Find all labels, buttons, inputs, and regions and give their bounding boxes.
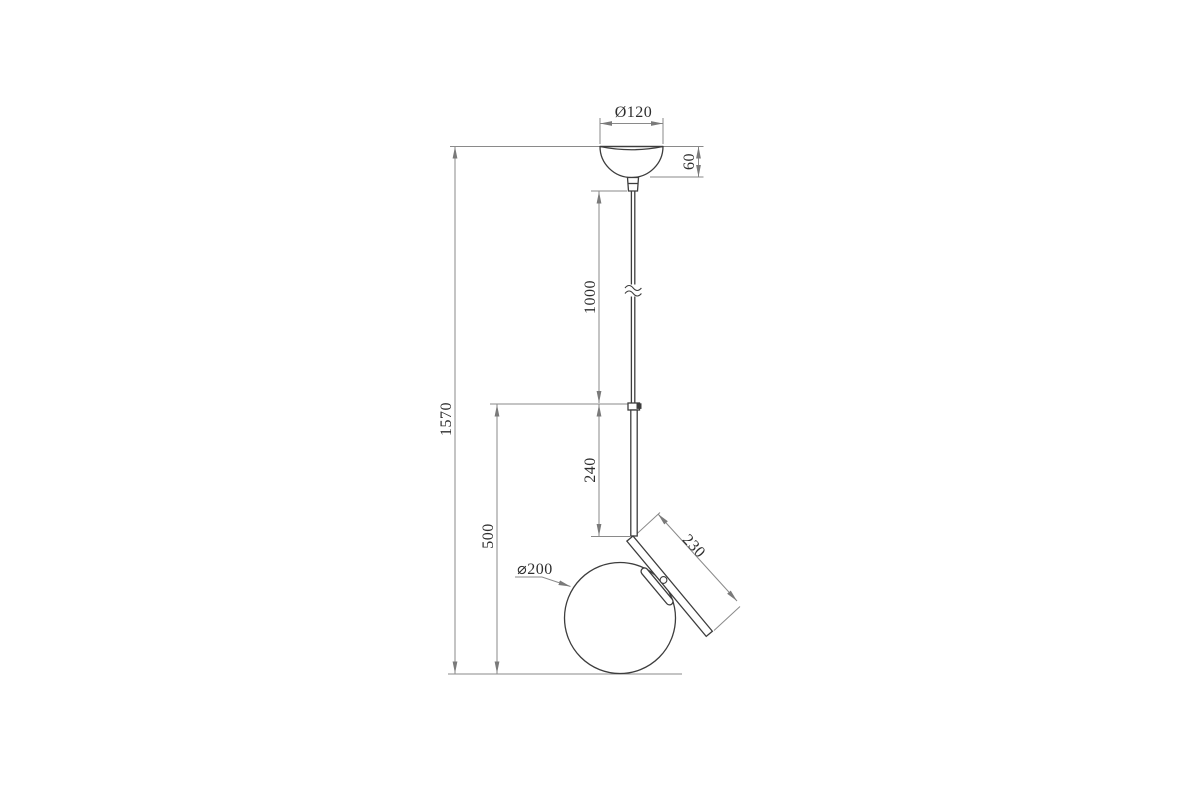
- ext-line-arm-top: [635, 513, 660, 536]
- label-suspension-length: 1000: [582, 280, 599, 314]
- label-shade-drop: 500: [480, 523, 497, 549]
- stem-rod: [631, 410, 637, 536]
- label-canopy-diameter: Ø120: [615, 104, 653, 121]
- cord-lower: [631, 297, 634, 404]
- drawing-canvas: Ø120 60 1000 1570 240 500 230 ⌀200: [0, 0, 1200, 800]
- label-arm-length: 230: [679, 531, 709, 561]
- clamp-screw: [660, 577, 667, 584]
- dimension-layer: [448, 118, 740, 674]
- cord-grip: [628, 178, 639, 192]
- break-symbol-bottom: [625, 291, 641, 296]
- canopy-bowl: [600, 147, 663, 178]
- label-overall-height: 1570: [438, 402, 455, 436]
- break-symbol-top: [625, 286, 641, 291]
- label-shade-diameter: ⌀200: [517, 561, 553, 578]
- cord-upper: [631, 191, 634, 285]
- object-layer: [565, 147, 713, 674]
- rod-connector-lock: [637, 403, 642, 409]
- technical-drawing: Ø120 60 1000 1570 240 500 230 ⌀200: [0, 0, 1200, 800]
- ext-line-arm-end: [714, 607, 740, 631]
- text-layer: Ø120 60 1000 1570 240 500 230 ⌀200: [438, 104, 709, 578]
- label-stem-length: 240: [582, 457, 599, 483]
- label-canopy-height: 60: [681, 153, 698, 170]
- leader-line-shade-diameter: [515, 577, 571, 587]
